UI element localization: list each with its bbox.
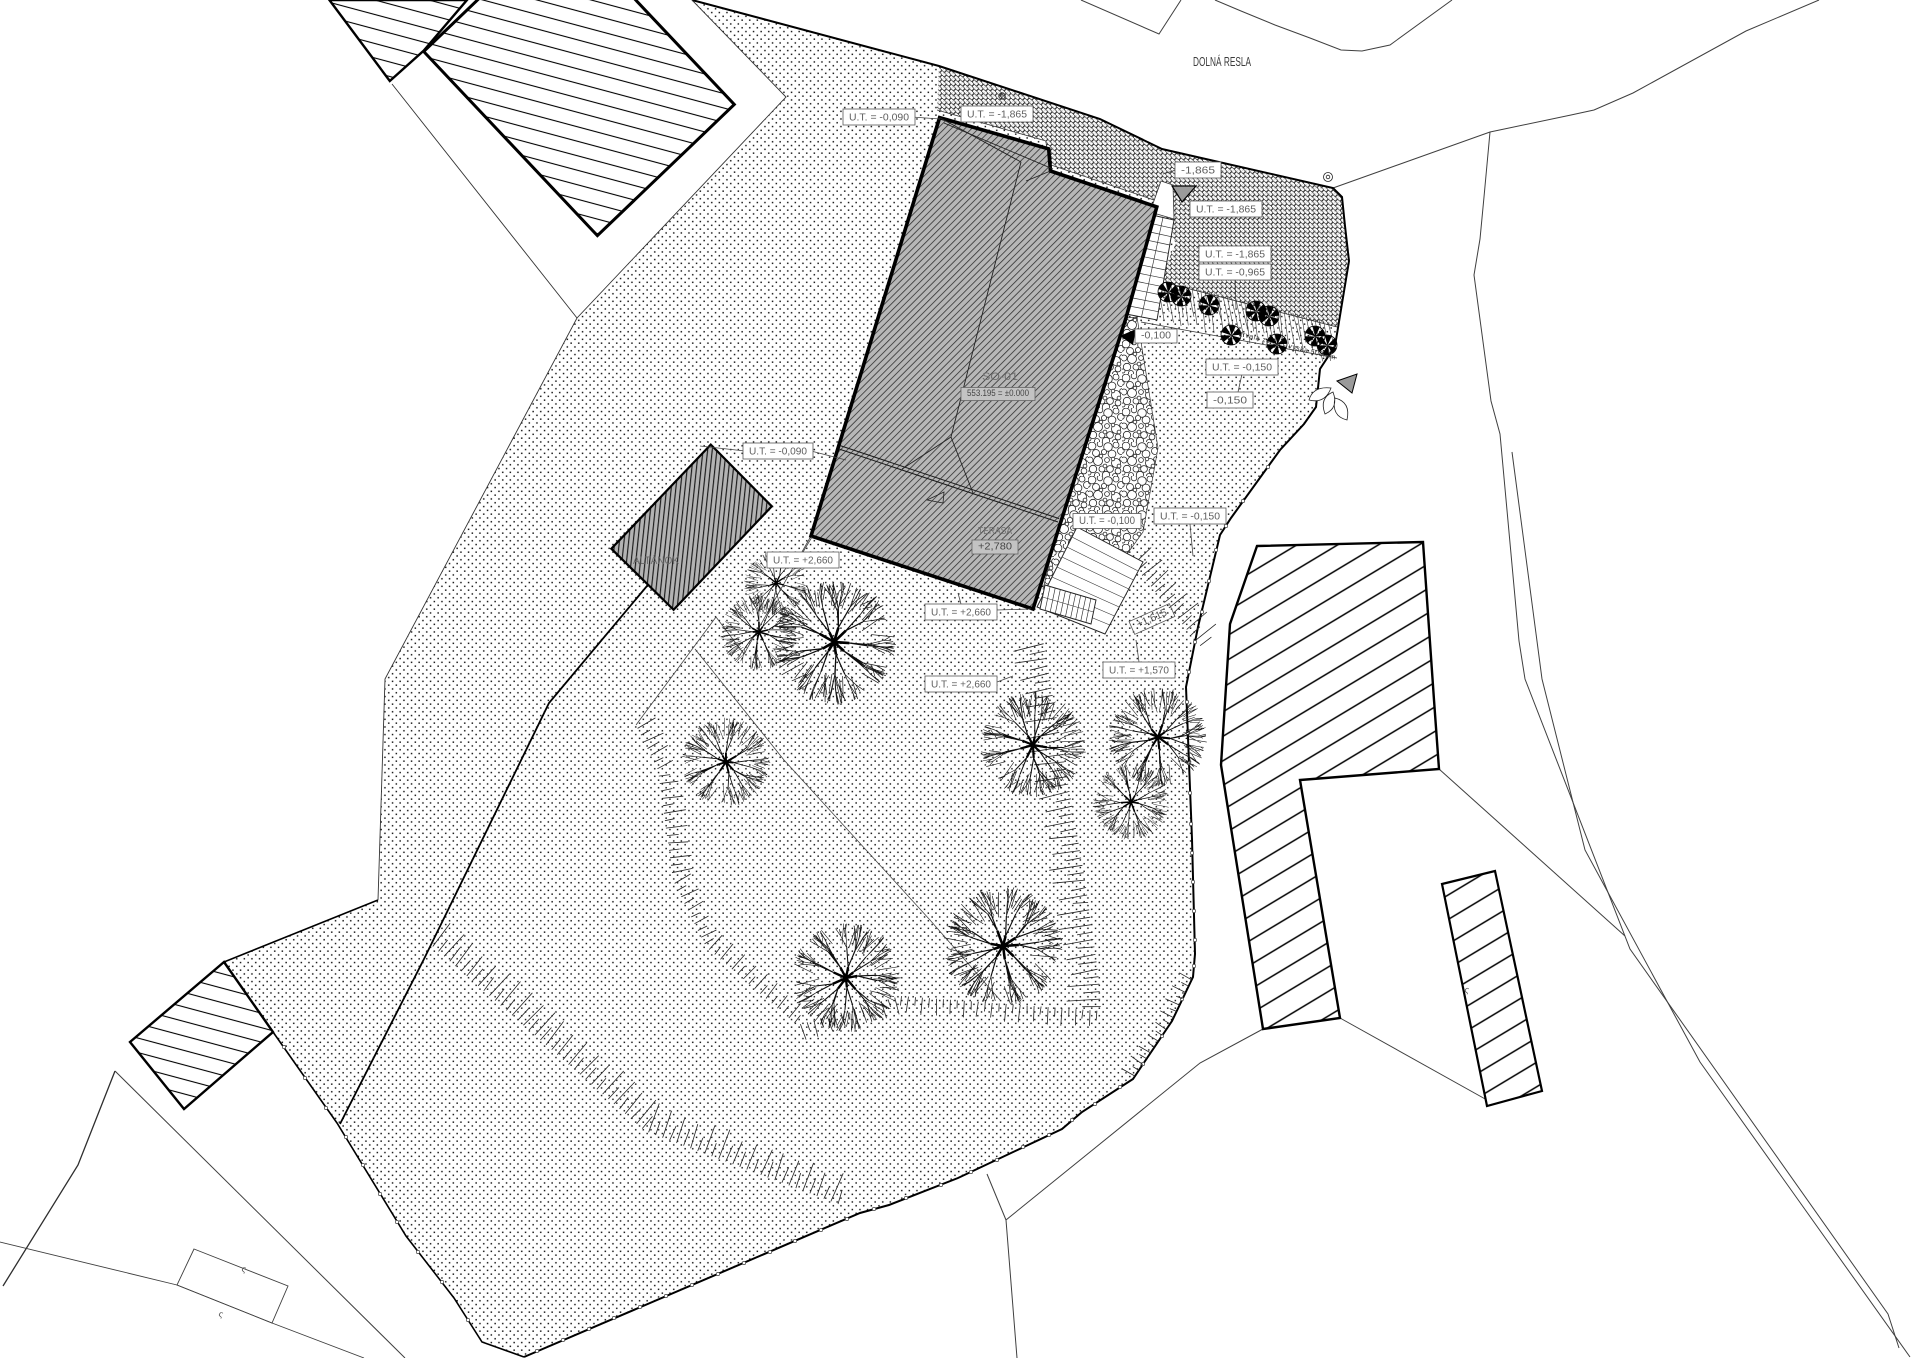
- svg-text:U.T. = -0,150: U.T. = -0,150: [1212, 362, 1272, 374]
- svg-text:ALTÁNOK: ALTÁNOK: [633, 554, 680, 567]
- svg-text:U.T. = -1,865: U.T. = -1,865: [1196, 204, 1256, 216]
- svg-text:SO-01: SO-01: [982, 371, 1018, 383]
- svg-text:DOLNÁ RESLA: DOLNÁ RESLA: [1193, 54, 1251, 69]
- svg-text:-1,865: -1,865: [1181, 165, 1215, 177]
- svg-text:553.195 = ±0.000: 553.195 = ±0.000: [967, 388, 1029, 399]
- svg-text:U.T. = -0,090: U.T. = -0,090: [849, 112, 909, 124]
- svg-text:U.T. = -0,090: U.T. = -0,090: [749, 446, 807, 458]
- svg-text:U.T. = -1,865: U.T. = -1,865: [1205, 249, 1265, 261]
- svg-text:U.T. = +2,660: U.T. = +2,660: [931, 607, 991, 619]
- svg-text:U.T. = +2,660: U.T. = +2,660: [773, 555, 833, 567]
- svg-text:U.T. = -1,865: U.T. = -1,865: [967, 109, 1027, 121]
- svg-text:+2,780: +2,780: [978, 541, 1012, 553]
- svg-text:U.T. = -0,150: U.T. = -0,150: [1160, 511, 1220, 523]
- svg-text:TERASA: TERASA: [978, 525, 1012, 537]
- svg-text:-0,100: -0,100: [1141, 330, 1171, 342]
- svg-text:U.T. = -0,965: U.T. = -0,965: [1205, 267, 1265, 279]
- svg-text:U.T. = +1,570: U.T. = +1,570: [1109, 665, 1169, 677]
- svg-text:U.T. = -0,100: U.T. = -0,100: [1079, 515, 1135, 527]
- svg-text:-0,150: -0,150: [1213, 395, 1247, 407]
- svg-text:U.T. = +2,660: U.T. = +2,660: [931, 679, 991, 691]
